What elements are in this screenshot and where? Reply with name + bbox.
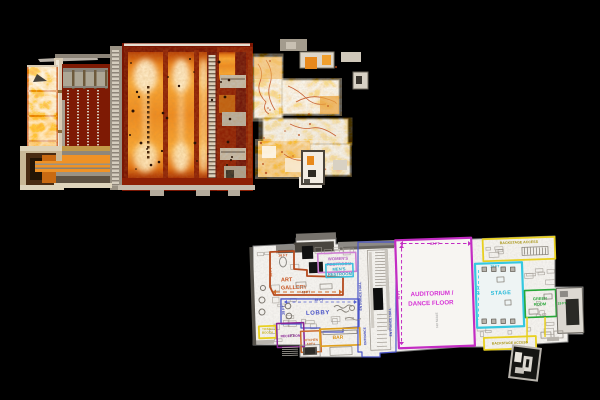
svg-text:AUDITORIUM /: AUDITORIUM / [410,290,453,299]
svg-text:RESTROOM: RESTROOM [328,271,353,277]
svg-text:28 FT: 28 FT [281,305,285,315]
svg-text:45 FT: 45 FT [315,298,325,302]
svg-text:82 FT: 82 FT [430,242,440,246]
svg-text:ENTRANCE: ENTRANCE [363,327,368,345]
svg-text:BAR: BAR [332,335,343,341]
svg-text:49 FT: 49 FT [301,290,311,294]
svg-text:19 FT: 19 FT [557,301,567,305]
svg-text:AREA: AREA [306,342,316,346]
svg-text:ROOM: ROOM [534,301,547,306]
svg-text:NO SCALE: NO SCALE [435,312,440,327]
svg-text:70 FT: 70 FT [397,289,401,299]
svg-text:ART: ART [281,277,293,283]
svg-text:LOBBY: LOBBY [306,310,330,317]
svg-text:28 FT: 28 FT [269,266,273,276]
svg-text:STAGE: STAGE [491,290,512,297]
svg-text:RECEPTION: RECEPTION [280,334,300,339]
svg-text:BOOTH: BOOTH [262,330,273,334]
